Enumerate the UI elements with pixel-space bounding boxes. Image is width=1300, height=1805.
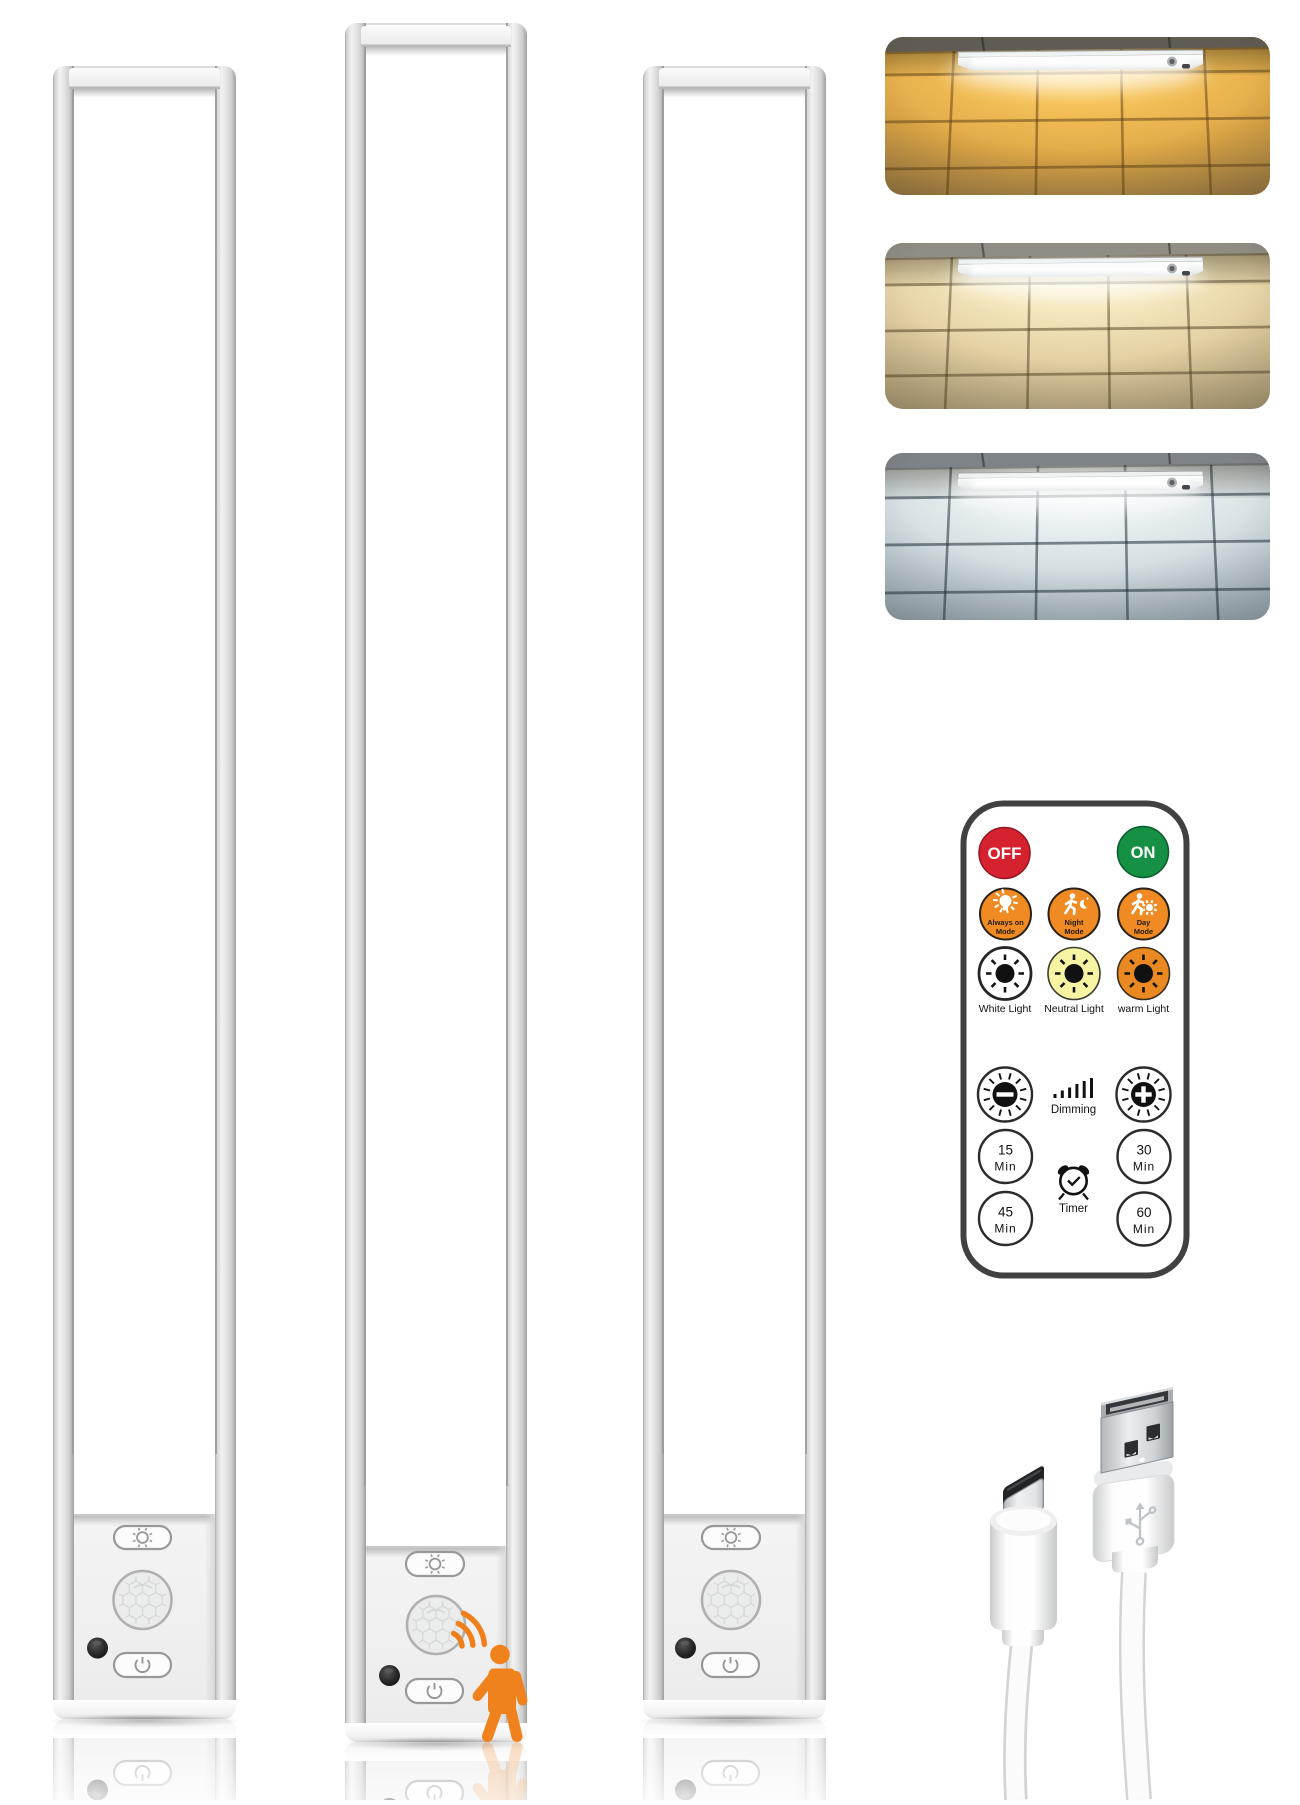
svg-text:ON: ON: [1131, 844, 1156, 862]
svg-text:Min: Min: [1133, 1222, 1155, 1236]
svg-text:warm Light: warm Light: [1117, 1003, 1169, 1015]
svg-text:Timer: Timer: [1059, 1203, 1088, 1215]
svg-text:White Light: White Light: [979, 1003, 1032, 1015]
svg-text:Neutral Light: Neutral Light: [1044, 1003, 1104, 1015]
svg-text:Mode: Mode: [1064, 927, 1083, 936]
svg-text:Min: Min: [994, 1222, 1016, 1236]
svg-text:Mode: Mode: [1134, 927, 1153, 936]
svg-text:60: 60: [1136, 1205, 1151, 1220]
svg-text:15: 15: [998, 1143, 1013, 1158]
svg-text:Min: Min: [1133, 1160, 1155, 1174]
svg-text:Night: Night: [1065, 918, 1084, 927]
svg-text:Always on: Always on: [987, 918, 1024, 927]
svg-text:Dimming: Dimming: [1051, 1104, 1096, 1116]
svg-text:45: 45: [998, 1205, 1013, 1220]
svg-text:Day: Day: [1137, 918, 1151, 927]
svg-text:30: 30: [1136, 1143, 1151, 1158]
svg-text:Mode: Mode: [996, 927, 1015, 936]
svg-text:Min: Min: [994, 1160, 1016, 1174]
svg-text:OFF: OFF: [988, 844, 1022, 863]
